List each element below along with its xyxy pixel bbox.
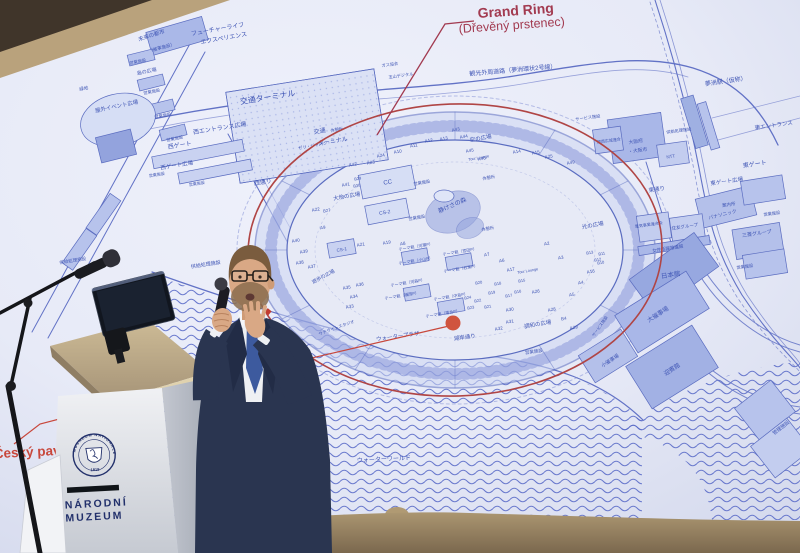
ear [268,279,275,290]
podium-front-face [52,388,178,553]
glasses [232,271,273,281]
photo-canvas: フューチャーライフエクスペリエンス未来の都市（催事施設）営業施設島の広場営業施設… [0,0,800,553]
right-sleeve [206,336,217,400]
eye-right [258,275,261,278]
photo-of-presentation: フューチャーライフエクスペリエンス未来の都市（催事施設）営業施設島の広場営業施設… [0,0,800,553]
seal-year: 1818 [90,467,100,472]
mouth [246,294,255,301]
stand-joint [6,381,16,391]
boom-clamp [24,299,33,308]
czech-pavilion-marker [446,316,461,331]
eye-left [238,275,241,278]
